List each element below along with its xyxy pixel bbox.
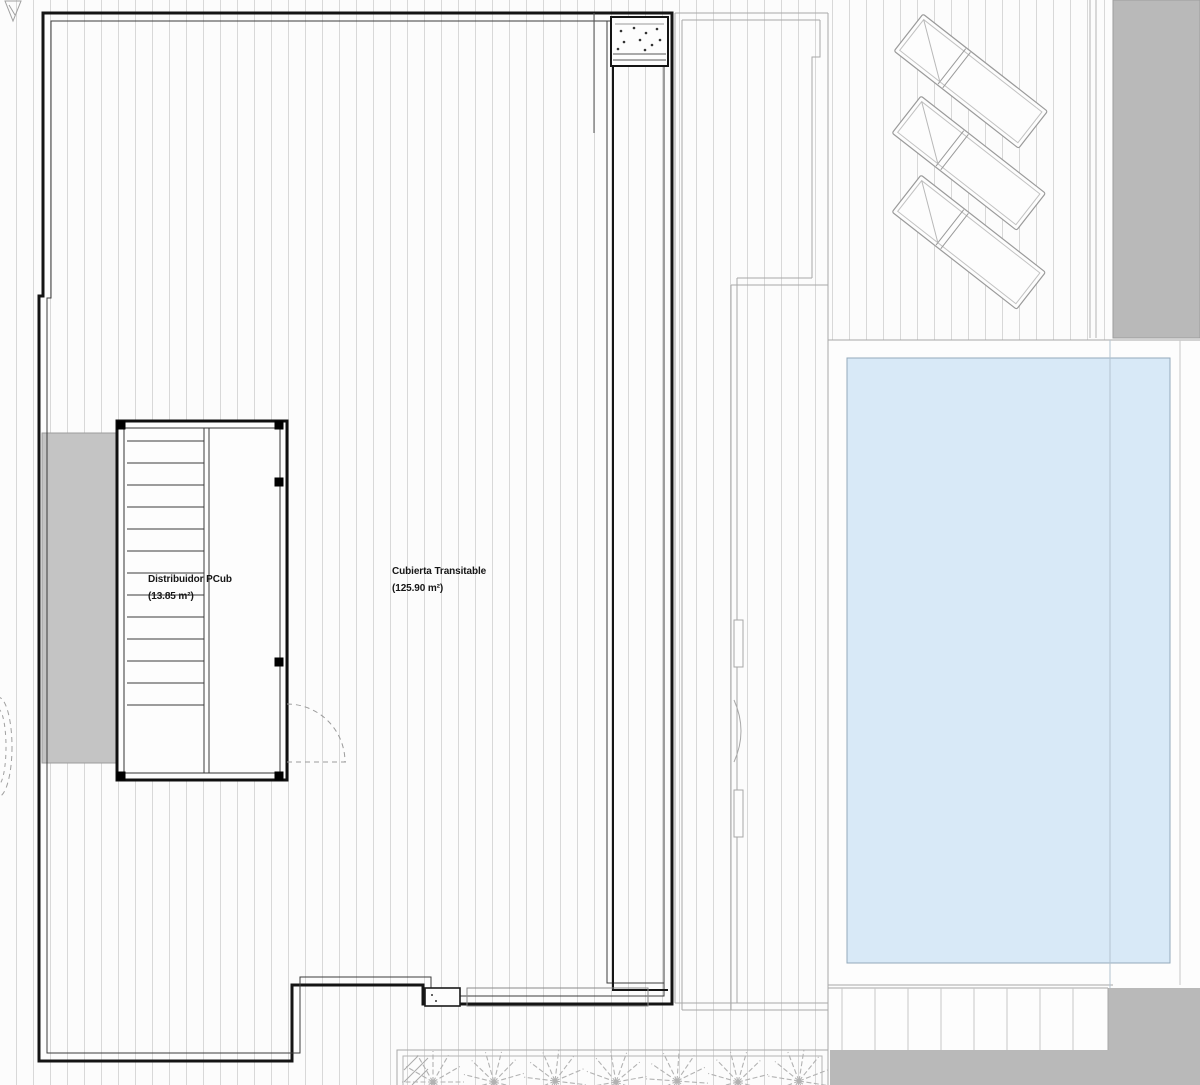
chimney-box	[611, 17, 668, 66]
gray-block-left	[42, 433, 116, 763]
label-distribuidor: Distribuidor PCub (13.85 m²)	[148, 571, 232, 605]
pool	[847, 340, 1170, 988]
room-area: (13.85 m²)	[148, 591, 194, 602]
room-name: Cubierta Transitable	[392, 566, 486, 577]
gray-area-bottom-right	[1108, 988, 1200, 1085]
room-area: (125.90 m²)	[392, 583, 443, 594]
roof-floor-plan: Distribuidor PCub (13.85 m²) Cubierta Tr…	[0, 0, 1200, 1085]
label-cubierta: Cubierta Transitable (125.90 m²)	[392, 563, 486, 597]
gray-strip-bottom	[830, 1050, 1108, 1085]
floor-plan-drawing	[0, 0, 1200, 1085]
room-name: Distribuidor PCub	[148, 574, 232, 585]
gray-band-right	[1113, 0, 1200, 338]
